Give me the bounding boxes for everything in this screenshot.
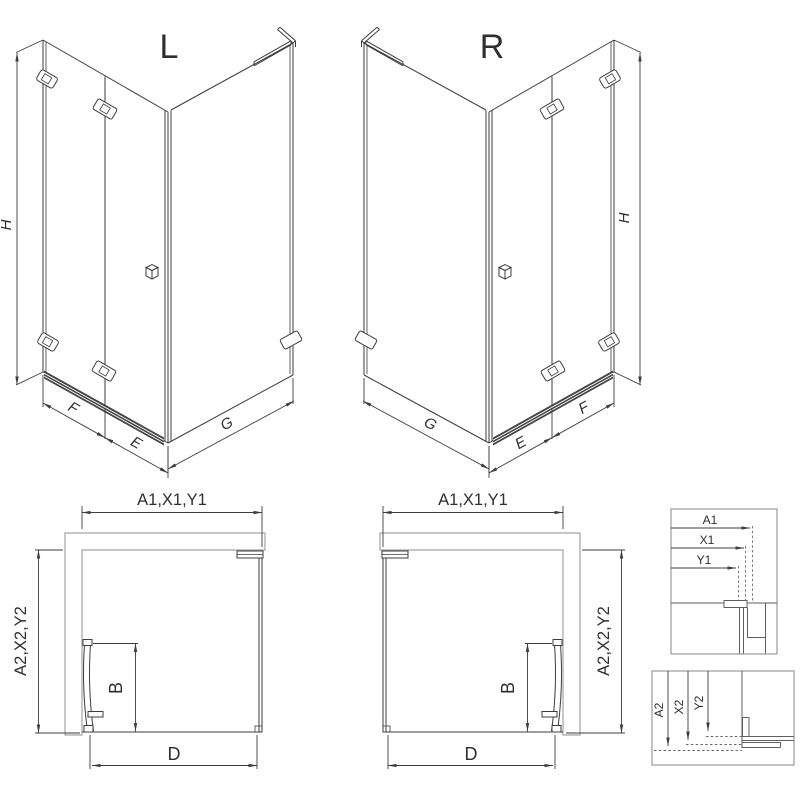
hinge-plate bbox=[598, 332, 620, 352]
plan-view-right: A1,X1,Y1 A2,X2,Y2 B D bbox=[380, 491, 625, 769]
dimension-a2-right: A2,X2,Y2 bbox=[566, 550, 625, 733]
glass-panels-left bbox=[43, 40, 293, 443]
dimension-a2-left: A2,X2,Y2 bbox=[12, 550, 80, 733]
dimension-height-left: H bbox=[0, 40, 43, 385]
dim-label-f: F bbox=[576, 398, 593, 418]
side-panel-clamp bbox=[355, 330, 378, 349]
dim-label-d: D bbox=[465, 744, 478, 764]
door-clamp bbox=[91, 360, 116, 381]
detail-label: X1 bbox=[700, 533, 715, 547]
threshold-rail bbox=[44, 371, 164, 446]
iso-view-right: R bbox=[355, 27, 641, 478]
iso-view-left: L bbox=[0, 27, 302, 478]
variant-label-right: R bbox=[480, 28, 505, 66]
detail-label: Y1 bbox=[697, 553, 712, 567]
hinge-plate bbox=[599, 69, 621, 89]
wall-profile-top-left-view bbox=[254, 27, 296, 66]
detail-label: A2 bbox=[652, 702, 666, 717]
dimension-a1-right: A1,X1,Y1 bbox=[383, 491, 563, 547]
door-handle bbox=[499, 265, 511, 280]
dim-label-b: B bbox=[498, 682, 518, 694]
plan-door-handle bbox=[542, 712, 557, 718]
dim-label-a2x2y2: A2,X2,Y2 bbox=[12, 606, 30, 676]
detail-label: A1 bbox=[703, 513, 718, 527]
dim-label-h: H bbox=[0, 219, 15, 230]
glass-side-panel bbox=[259, 558, 262, 732]
dim-label-a2x2y2: A2,X2,Y2 bbox=[595, 606, 613, 676]
dim-label-b: B bbox=[106, 682, 126, 694]
dimension-b-left: B bbox=[93, 644, 138, 732]
door-clamp bbox=[92, 98, 117, 119]
plan-door-handle bbox=[88, 712, 103, 718]
door-handle bbox=[146, 265, 158, 280]
detail-label: Y2 bbox=[692, 695, 706, 710]
hinge-plate bbox=[37, 332, 59, 352]
technical-drawing-page: L bbox=[0, 0, 800, 800]
dim-label-g: G bbox=[218, 414, 237, 435]
plan-door bbox=[542, 640, 562, 733]
variant-label-left: L bbox=[160, 28, 179, 66]
dim-label-g: G bbox=[421, 414, 440, 435]
door-clamp bbox=[540, 360, 565, 381]
dim-label-d: D bbox=[168, 744, 181, 764]
wall-hatched bbox=[65, 533, 265, 735]
wall-hatched bbox=[380, 533, 580, 735]
dimension-a1-left: A1,X1,Y1 bbox=[82, 491, 262, 547]
drawing-canvas: L bbox=[0, 0, 800, 800]
detail-a2-x2-y2: A2 X2 Y2 bbox=[652, 671, 794, 765]
threshold-rail bbox=[493, 371, 613, 446]
detail-a1-x1-y1: A1 X1 Y1 bbox=[671, 509, 777, 654]
dim-label-e: E bbox=[128, 433, 146, 453]
dim-label-f: F bbox=[65, 398, 82, 418]
glass-panels-right bbox=[364, 40, 614, 443]
dimension-height-right: H bbox=[614, 40, 641, 385]
dim-label-a1x1y1: A1,X1,Y1 bbox=[137, 491, 207, 509]
detail-label: X2 bbox=[672, 699, 686, 714]
plan-door bbox=[83, 640, 103, 733]
plan-view-left: A1,X1,Y1 A2,X2,Y2 B D bbox=[12, 491, 265, 769]
hinge-plate bbox=[36, 69, 58, 89]
dimension-side-right: G bbox=[363, 378, 489, 473]
dimension-side-left: G bbox=[168, 378, 294, 473]
dimension-d-right: D bbox=[388, 735, 555, 769]
dim-label-a1x1y1: A1,X1,Y1 bbox=[438, 491, 508, 509]
wall-profile-top-right-view bbox=[362, 27, 404, 66]
door-clamp bbox=[539, 98, 564, 119]
dimension-b-right: B bbox=[498, 644, 552, 732]
dim-label-e: E bbox=[512, 433, 530, 453]
dimension-d-left: D bbox=[90, 735, 257, 769]
dim-label-h: H bbox=[616, 212, 633, 223]
glass-side-panel bbox=[383, 558, 386, 732]
side-panel-clamp bbox=[280, 330, 303, 349]
